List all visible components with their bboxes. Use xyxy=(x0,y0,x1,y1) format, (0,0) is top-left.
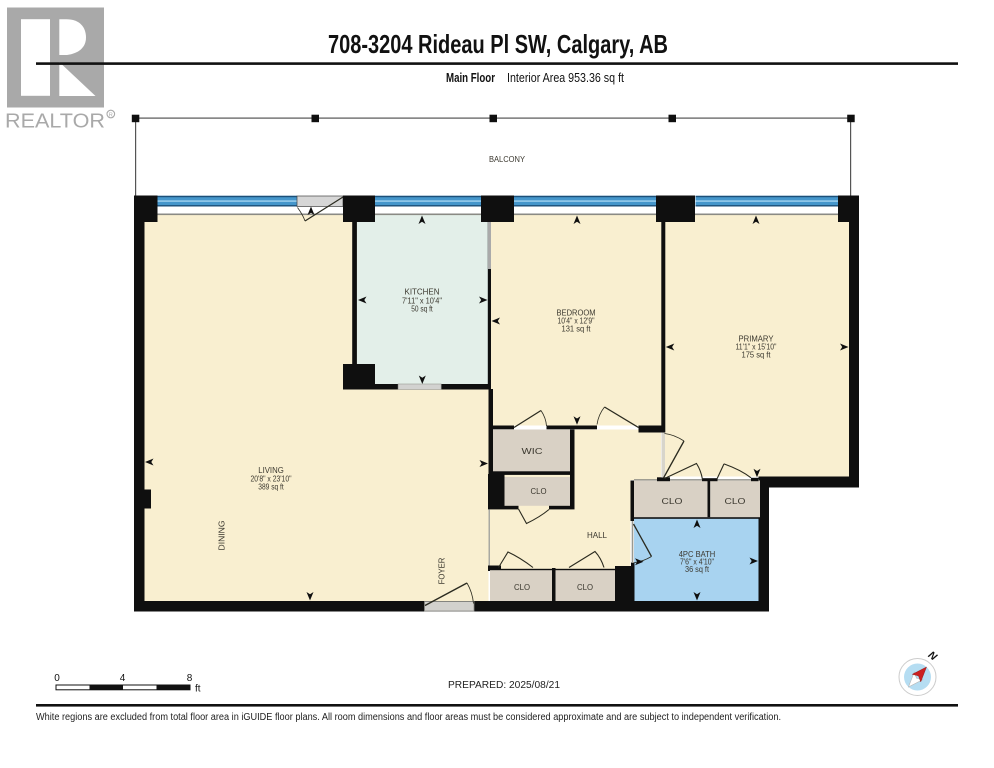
svg-text:CLO: CLO xyxy=(514,583,530,592)
svg-text:FOYER: FOYER xyxy=(438,557,447,584)
svg-text:8: 8 xyxy=(187,673,193,684)
svg-text:CLO: CLO xyxy=(662,497,683,506)
svg-text:KITCHEN: KITCHEN xyxy=(405,288,440,297)
svg-text:389 sq ft: 389 sq ft xyxy=(258,483,284,492)
svg-text:WIC: WIC xyxy=(522,447,543,456)
svg-text:PREPARED: 2025/08/21: PREPARED: 2025/08/21 xyxy=(448,680,560,691)
svg-text:HALL: HALL xyxy=(587,531,608,540)
svg-text:Interior Area 953.36 sq ft: Interior Area 953.36 sq ft xyxy=(507,71,624,85)
svg-text:REALTOR: REALTOR xyxy=(5,111,105,133)
svg-text:CLO: CLO xyxy=(577,583,593,592)
svg-text:R: R xyxy=(109,113,113,119)
svg-text:50 sq ft: 50 sq ft xyxy=(411,305,433,314)
svg-text:ft: ft xyxy=(195,684,201,695)
svg-text:0: 0 xyxy=(54,673,60,684)
svg-text:36 sq ft: 36 sq ft xyxy=(685,565,710,574)
svg-text:Main Floor: Main Floor xyxy=(446,71,495,85)
svg-text:BALCONY: BALCONY xyxy=(489,154,525,164)
svg-text:CLO: CLO xyxy=(725,497,746,506)
svg-text:DINING: DINING xyxy=(218,521,227,551)
svg-text:CLO: CLO xyxy=(531,487,547,496)
svg-text:708-3204 Rideau Pl SW, Calgary: 708-3204 Rideau Pl SW, Calgary, AB xyxy=(328,29,668,59)
svg-text:175 sq ft: 175 sq ft xyxy=(742,351,772,360)
svg-text:4: 4 xyxy=(120,673,126,684)
svg-text:131 sq ft: 131 sq ft xyxy=(562,325,592,334)
svg-text:White regions are excluded fro: White regions are excluded from total fl… xyxy=(36,712,781,723)
